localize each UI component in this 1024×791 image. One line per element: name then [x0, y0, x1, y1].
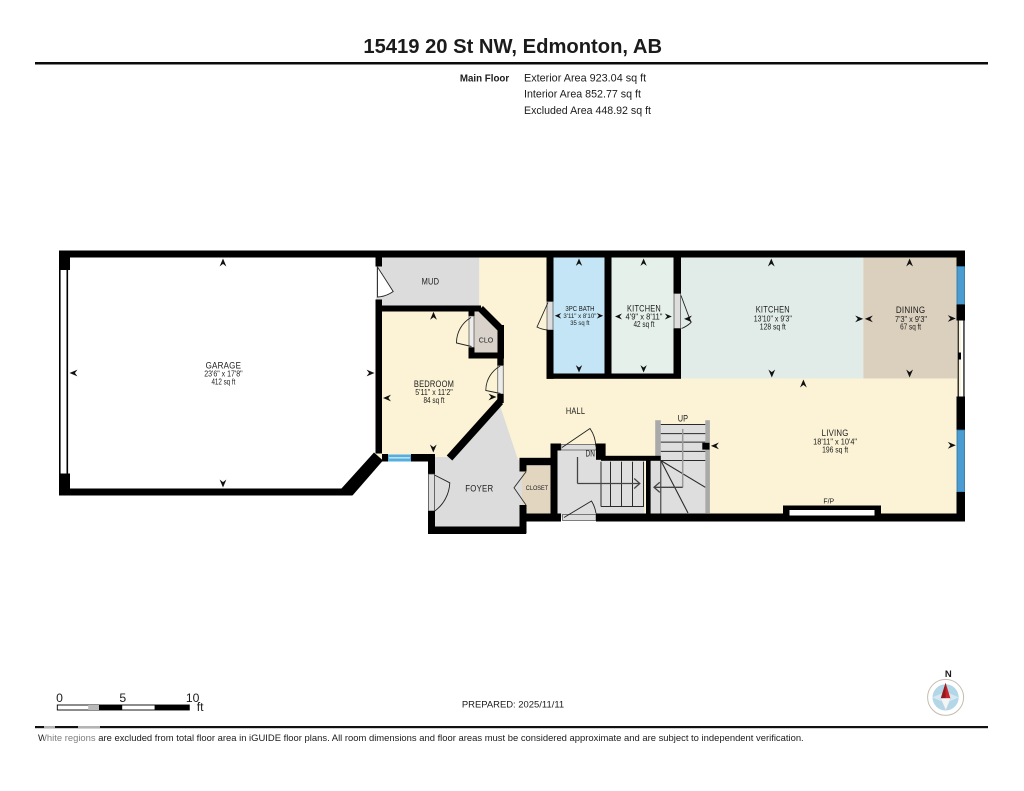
svg-text:3PC BATH: 3PC BATH [565, 306, 594, 313]
svg-text:412 sq ft: 412 sq ft [211, 378, 236, 387]
svg-text:White regions are excluded fro: White regions are excluded from total fl… [38, 732, 804, 743]
svg-text:CLO: CLO [479, 335, 494, 344]
svg-text:Interior Area 852.77 sq ft: Interior Area 852.77 sq ft [524, 89, 641, 101]
svg-text:84 sq ft: 84 sq ft [424, 396, 446, 405]
svg-text:128 sq ft: 128 sq ft [760, 323, 787, 332]
svg-text:N: N [945, 669, 952, 680]
svg-text:Exterior Area 923.04 sq ft: Exterior Area 923.04 sq ft [524, 72, 646, 84]
svg-text:5: 5 [119, 691, 126, 705]
svg-text:Main Floor: Main Floor [460, 72, 509, 84]
svg-text:CLOSET: CLOSET [526, 485, 548, 492]
svg-text:DINING: DINING [896, 305, 925, 315]
svg-text:Excluded Area 448.92 sq ft: Excluded Area 448.92 sq ft [524, 105, 651, 117]
svg-text:35 sq ft: 35 sq ft [570, 320, 589, 327]
svg-text:DN: DN [585, 449, 595, 459]
svg-text:15419 20 St NW, Edmonton, AB: 15419 20 St NW, Edmonton, AB [363, 36, 662, 58]
svg-text:KITCHEN: KITCHEN [756, 305, 790, 315]
svg-text:PREPARED: 2025/11/11: PREPARED: 2025/11/11 [462, 700, 564, 711]
svg-text:196 sq ft: 196 sq ft [822, 446, 849, 455]
svg-text:F/P: F/P [823, 498, 834, 505]
svg-text:0: 0 [56, 691, 63, 705]
svg-text:FOYER: FOYER [465, 484, 493, 494]
svg-text:ft: ft [197, 700, 204, 714]
svg-text:UP: UP [678, 413, 689, 423]
svg-text:42 sq ft: 42 sq ft [634, 320, 656, 329]
svg-text:MUD: MUD [422, 277, 440, 287]
svg-text:67 sq ft: 67 sq ft [900, 322, 922, 331]
svg-text:HALL: HALL [566, 406, 585, 416]
